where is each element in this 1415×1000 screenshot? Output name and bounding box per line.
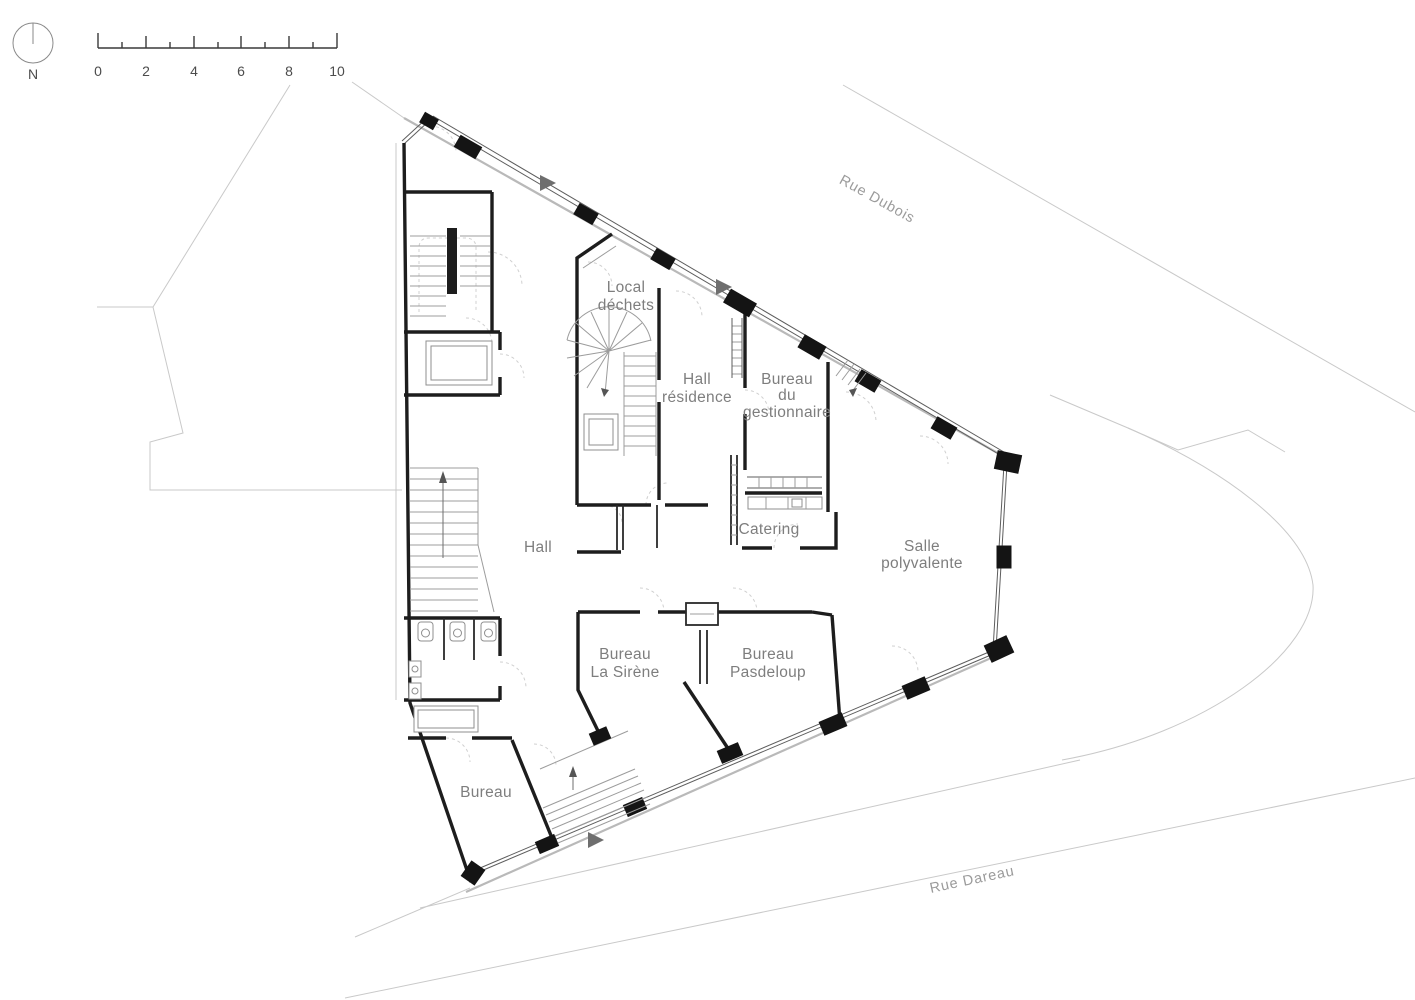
door-swings xyxy=(419,126,948,766)
wall-core-south xyxy=(577,505,708,552)
room-label-bureau-la-sirene: Bureau xyxy=(599,646,651,663)
stair-residence-treads xyxy=(624,356,656,446)
room-label-bureau-gestionnaire: gestionnaire xyxy=(743,404,831,421)
door-arc xyxy=(733,588,757,612)
pillar-corner-ne xyxy=(994,451,1021,474)
site-context xyxy=(97,82,1415,998)
door-arc xyxy=(604,505,622,523)
stair-residence-rails xyxy=(624,352,656,456)
wall-hall-niches xyxy=(617,505,657,550)
wall-pasdeloup-east xyxy=(832,615,840,722)
room-label-hall: Hall xyxy=(524,539,552,556)
pillar xyxy=(651,249,675,270)
stair-west-edge xyxy=(478,468,494,612)
pillar xyxy=(902,677,930,699)
street-labels: Rue Dubois Rue Dareau xyxy=(836,172,1016,897)
pillar xyxy=(997,546,1011,568)
compass-label: N xyxy=(28,66,38,82)
sink-basin xyxy=(412,666,418,672)
scale-label-4: 4 xyxy=(190,63,198,79)
pillar xyxy=(931,417,957,439)
entrance-markers xyxy=(540,175,732,848)
door-arc xyxy=(640,588,664,612)
room-label-bureau-pasdeloup: Pasdeloup xyxy=(730,664,806,681)
scale-label-0: 0 xyxy=(94,63,102,79)
toilet-bowl xyxy=(454,629,462,637)
stair-west-treads xyxy=(410,468,478,611)
room-label-hall-residence: résidence xyxy=(662,389,732,406)
scale-label-2: 2 xyxy=(142,63,150,79)
room-label-bureau: Bureau xyxy=(460,784,512,801)
interior-window-band-rungs xyxy=(759,477,807,488)
toilet-bowl xyxy=(485,629,493,637)
wall-vestibule-diagonal xyxy=(684,682,731,753)
elevator-west-cab-inner xyxy=(431,346,487,380)
toilet-bowl xyxy=(422,629,430,637)
stair-north-spine xyxy=(447,228,457,294)
door-arc xyxy=(676,291,702,317)
pillar xyxy=(574,204,598,225)
pillar xyxy=(717,743,742,764)
glazed-partition-rungs xyxy=(732,326,742,374)
sink-basin xyxy=(412,688,418,694)
room-label-bureau-gestionnaire: du xyxy=(778,387,796,404)
north-arrow-icon: N xyxy=(13,23,53,82)
door-arc xyxy=(500,662,526,688)
scale-bar-minor-ticks xyxy=(122,42,313,48)
corner-street-edge xyxy=(355,888,470,937)
street-boundary-dubois xyxy=(404,118,1010,460)
wall-bureau-partition xyxy=(700,630,707,684)
spiral-stair-radials xyxy=(567,308,651,394)
scale-label-8: 8 xyxy=(285,63,293,79)
room-label-local-dechets: déchets xyxy=(598,297,654,314)
neighbor-zigzag xyxy=(1050,395,1285,452)
room-label-hall-residence: Hall xyxy=(683,371,711,388)
room-label-bureau-la-sirene: La Sirène xyxy=(590,664,659,681)
room-label-salle-polyvalente: Salle xyxy=(904,538,940,555)
up-arrow-icon xyxy=(439,471,447,483)
parcel-line-west xyxy=(97,85,402,490)
spiral-arrow-icon xyxy=(601,388,609,397)
pillar xyxy=(855,370,881,392)
room-label-bureau-pasdeloup: Bureau xyxy=(742,646,794,663)
door-arc xyxy=(846,392,876,422)
rue-dareau-south-edge xyxy=(345,778,1415,998)
floor-plan-page: N 0 2 4 6 8 10 xyxy=(0,0,1415,1000)
door-arc xyxy=(646,483,668,505)
interior-window-band-rails xyxy=(747,477,822,488)
room-label-bureau-gestionnaire: Bureau xyxy=(761,371,813,388)
pillar xyxy=(589,727,610,745)
scale-bar: 0 2 4 6 8 10 xyxy=(94,33,345,79)
scale-label-10: 10 xyxy=(329,63,345,79)
room-label-catering: Catering xyxy=(739,521,800,538)
rue-dubois-north-edge xyxy=(843,85,1415,412)
door-arc xyxy=(500,354,524,378)
kitchen-counter xyxy=(748,497,822,509)
pillar xyxy=(819,713,847,735)
room-label-local-dechets: Local xyxy=(607,279,646,296)
floor-plan-drawing: N 0 2 4 6 8 10 xyxy=(0,0,1415,1000)
pillar xyxy=(724,289,757,316)
wall-shaft-catering xyxy=(731,455,737,545)
wall-vestibule-thin xyxy=(540,731,628,769)
down-arrow-icon xyxy=(849,388,857,397)
closet-inner xyxy=(418,710,474,728)
plaza-curve xyxy=(1062,428,1313,760)
door-arc xyxy=(920,436,948,464)
door-arc xyxy=(892,646,918,672)
room-label-salle-polyvalente: polyvalente xyxy=(881,555,963,572)
parcel-line-northwest xyxy=(352,82,404,118)
kitchen-sink xyxy=(792,499,802,507)
street-label-dareau: Rue Dareau xyxy=(928,863,1016,897)
scale-label-6: 6 xyxy=(237,63,245,79)
glazed-partition-rails xyxy=(732,318,742,378)
up-arrow-icon xyxy=(569,766,577,777)
pillar xyxy=(535,835,558,854)
elevator-residence-cab-inner xyxy=(589,419,613,445)
street-label-dubois: Rue Dubois xyxy=(836,172,917,227)
door-arc xyxy=(534,744,556,766)
door-arc xyxy=(446,738,470,762)
